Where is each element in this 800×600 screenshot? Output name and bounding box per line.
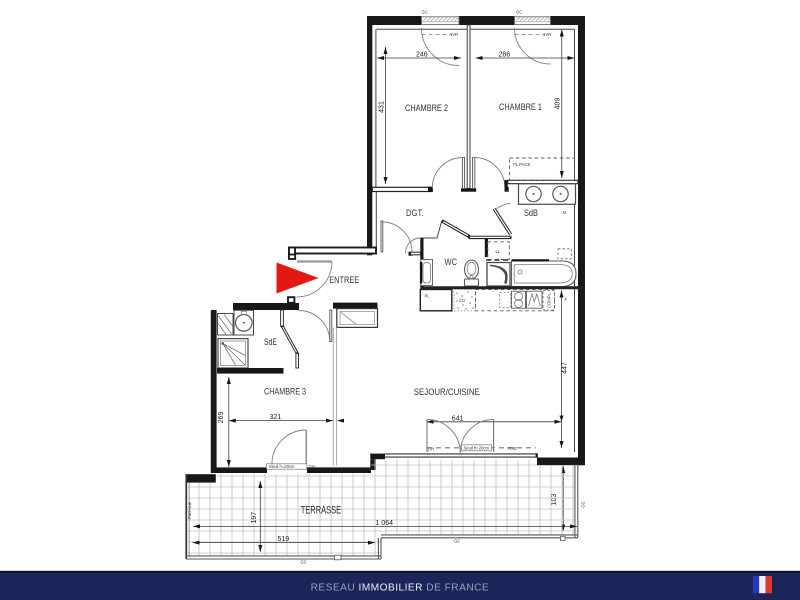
svg-text:GC: GC [516, 9, 522, 14]
svg-text:RESEAU IMMOBILIER DE FRANCE: RESEAU IMMOBILIER DE FRANCE [311, 583, 490, 594]
svg-text:GC: GC [581, 501, 586, 507]
svg-text:M.: M. [563, 210, 568, 215]
svg-text:1 064: 1 064 [376, 520, 394, 527]
svg-text:431: 431 [379, 101, 386, 113]
svg-text:LL: LL [496, 249, 501, 254]
svg-text:DGT.: DGT. [406, 208, 424, 219]
svg-text:FIXE: FIXE [508, 446, 518, 451]
svg-text:409: 409 [555, 98, 562, 110]
svg-text:GC: GC [454, 539, 460, 544]
svg-text:641: 641 [452, 415, 464, 422]
svg-text:PL: PL [425, 294, 431, 299]
svg-text:ENTREE: ENTREE [329, 275, 359, 286]
svg-text:GC: GC [301, 560, 307, 565]
svg-text:103: 103 [551, 494, 558, 506]
svg-text:SdE: SdE [264, 337, 277, 348]
svg-text:197: 197 [251, 512, 258, 524]
svg-text:GC: GC [422, 9, 428, 14]
svg-text:Seuil h=20cm: Seuil h=20cm [464, 445, 490, 450]
svg-text:269: 269 [218, 412, 225, 424]
svg-text:WC: WC [445, 257, 458, 268]
svg-text:Seuil h=20cm: Seuil h=20cm [269, 464, 295, 469]
svg-text:246: 246 [416, 51, 428, 58]
svg-text:CHAMBRE 3: CHAMBRE 3 [264, 387, 306, 398]
svg-text:519: 519 [278, 536, 290, 543]
svg-text:286: 286 [499, 51, 511, 58]
svg-text:COMPL.: COMPL. [547, 292, 552, 308]
svg-text:SdB: SdB [524, 208, 538, 219]
svg-text:F: F [565, 297, 568, 302]
svg-text:1VR: 1VR [543, 32, 551, 37]
svg-text:447: 447 [562, 362, 569, 374]
svg-text:Pare-vue: Pare-vue [187, 501, 192, 519]
svg-text:PL.PACK: PL.PACK [513, 162, 531, 167]
svg-text:1Vt: 1Vt [428, 447, 435, 452]
svg-text:SEJOUR/CUISINE: SEJOUR/CUISINE [414, 387, 480, 398]
svg-text:CHAMBRE 1: CHAMBRE 1 [499, 102, 542, 113]
svg-text:TERRASSE: TERRASSE [301, 504, 342, 516]
svg-text:CU: CU [459, 298, 466, 303]
svg-text:1VR: 1VR [450, 32, 458, 37]
svg-text:1Vg: 1Vg [308, 464, 316, 469]
svg-text:321: 321 [270, 414, 282, 421]
svg-text:CHAMBRE 2: CHAMBRE 2 [405, 103, 448, 114]
